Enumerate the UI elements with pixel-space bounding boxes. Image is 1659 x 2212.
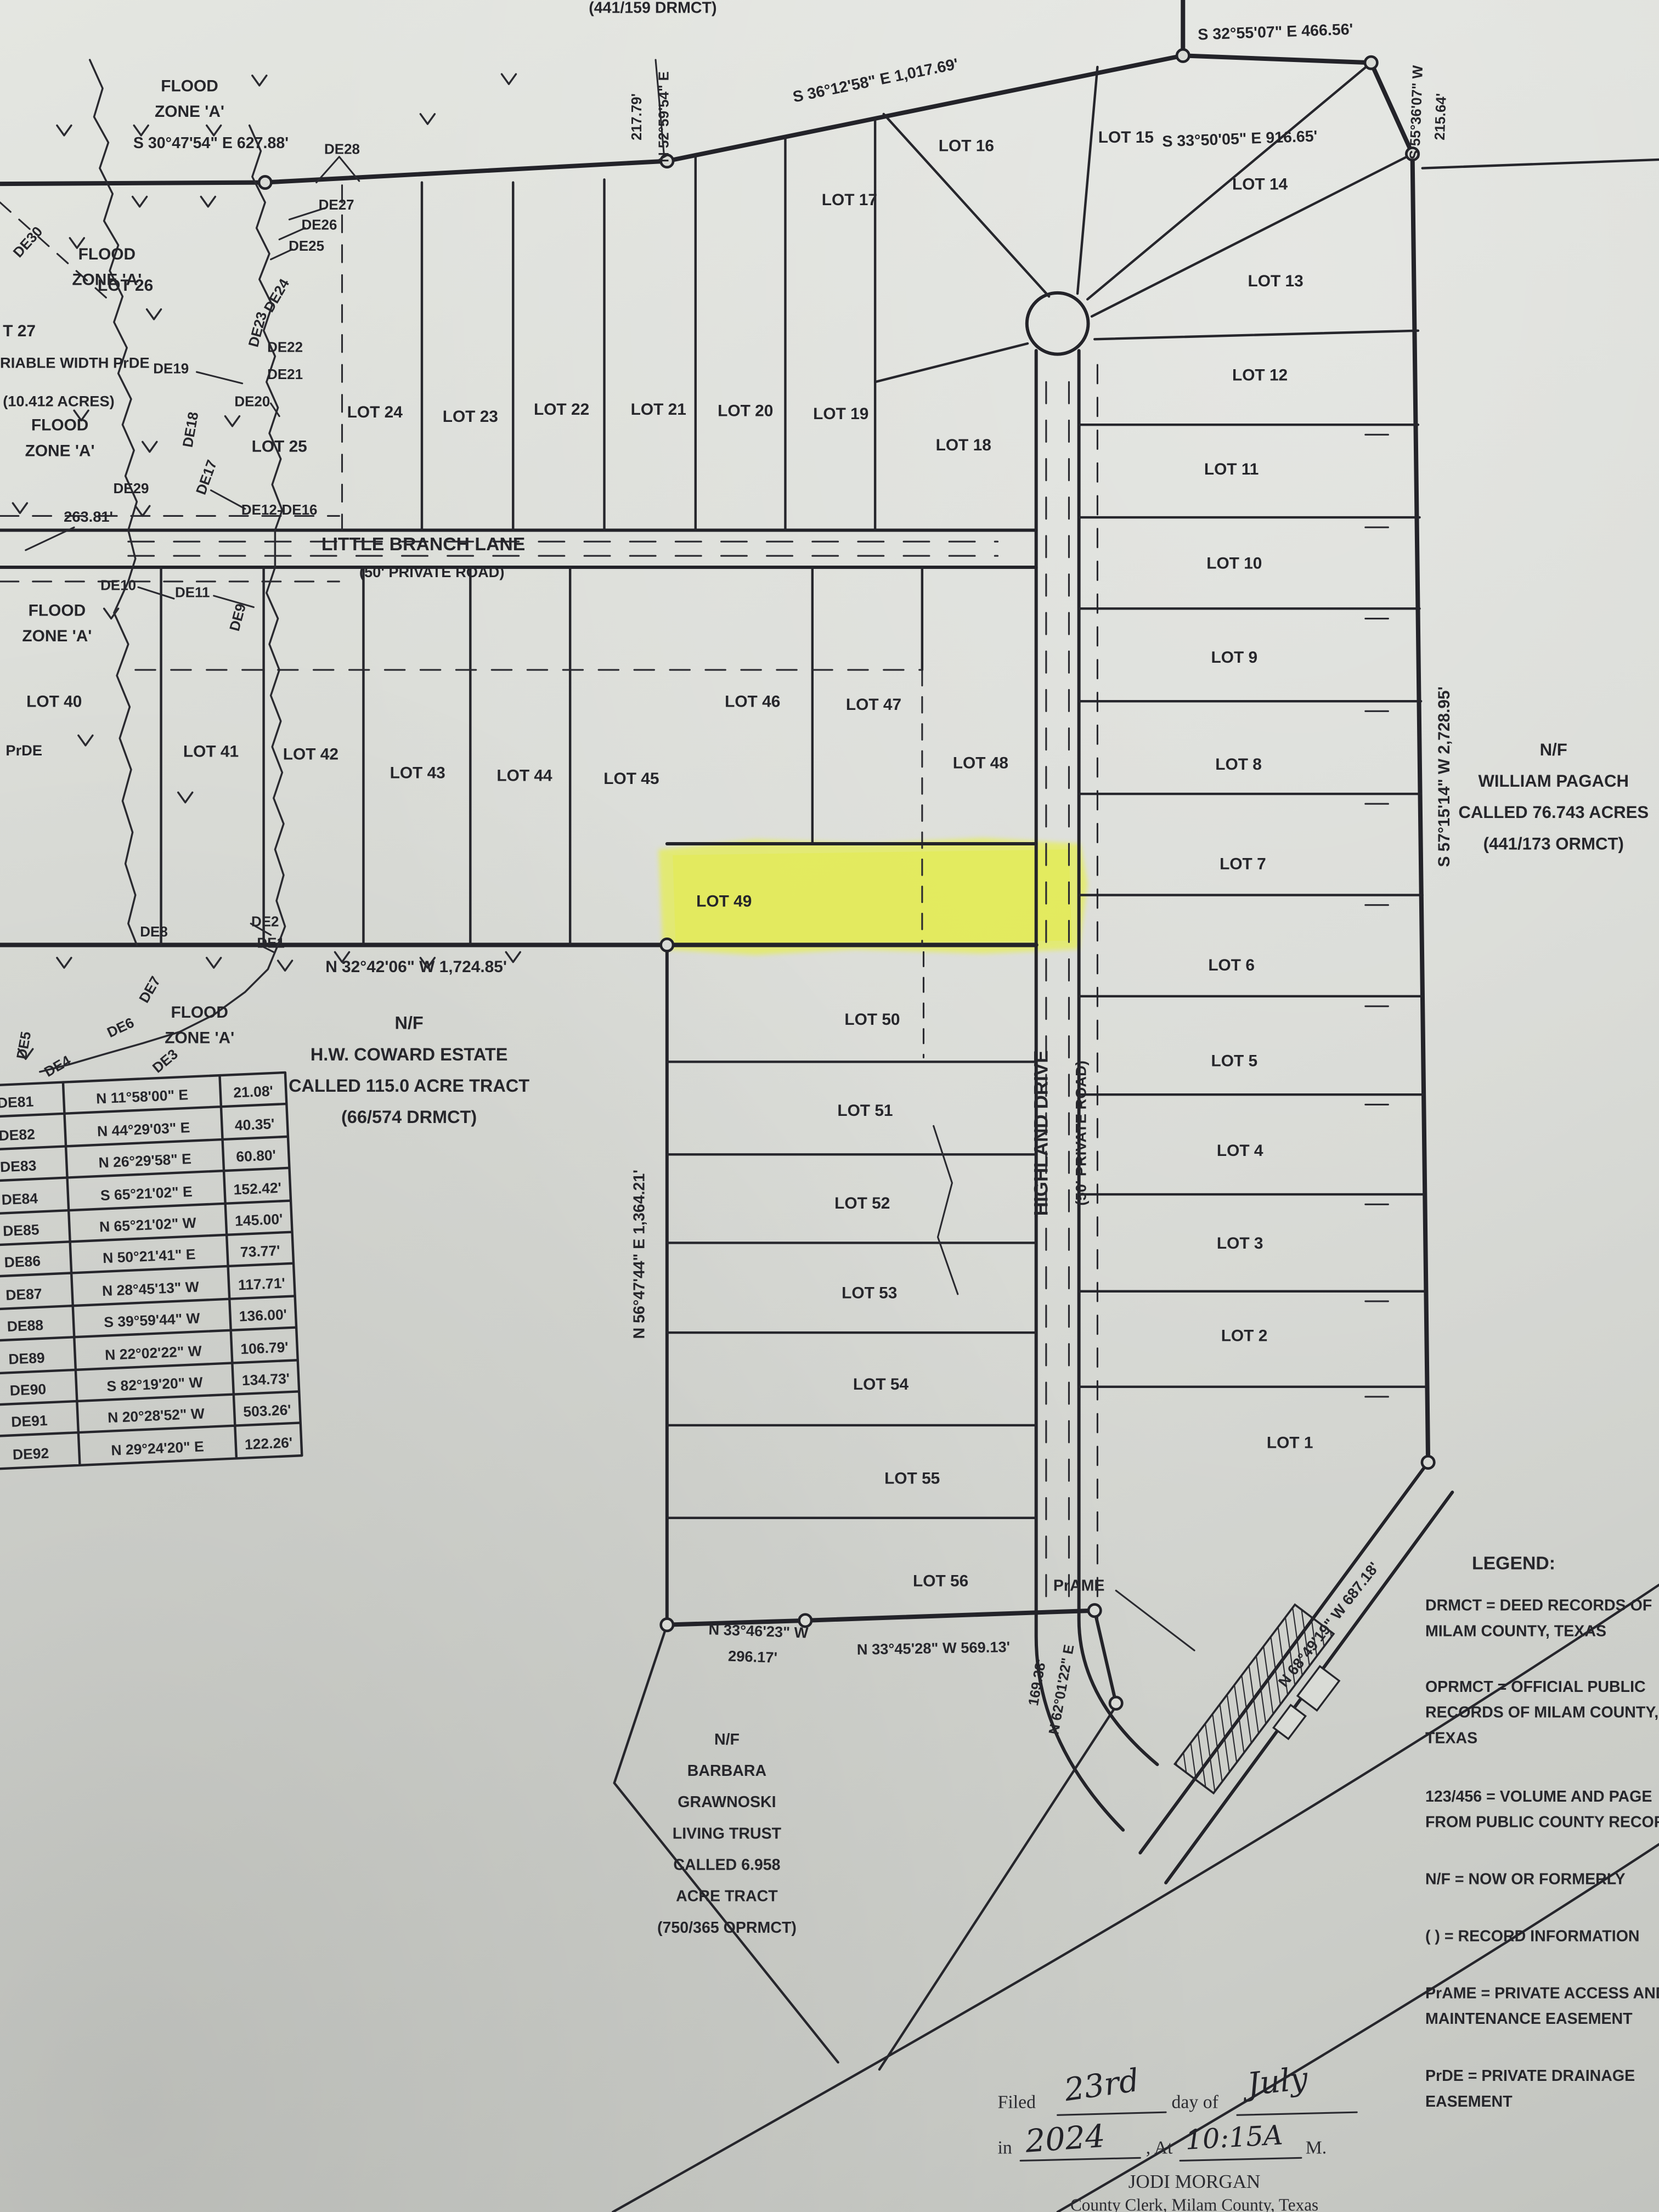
table-cell: DE90	[9, 1381, 46, 1399]
little-branch-lane-label: LITTLE BRANCH LANE	[321, 534, 525, 555]
de-label-22: DE22	[267, 339, 303, 356]
table-cell: 73.77'	[240, 1242, 280, 1260]
filing-block: Filed 23rd day of July in 2024 , At 10:1…	[998, 2061, 1357, 2212]
de-label-8: DE8	[140, 923, 168, 940]
table-cell: N 65°21'02" W	[99, 1215, 196, 1235]
table-cell: 136.00'	[239, 1306, 287, 1325]
grawnoski-name-1: BARBARA	[687, 1762, 766, 1780]
lot-label-1: LOT 1	[1267, 1434, 1313, 1452]
filed-time-handwritten: 10:15A	[1184, 2119, 1284, 2155]
lot-label-23: LOT 23	[443, 408, 498, 426]
monument	[1365, 57, 1377, 69]
lot-label-9: LOT 9	[1211, 648, 1258, 667]
legend-record-info: ( ) = RECORD INFORMATION	[1425, 1927, 1640, 1945]
prame-label: PrAME	[1053, 1577, 1105, 1594]
dist-21564: 215.64'	[1431, 93, 1449, 140]
day-of-word: day of	[1172, 2092, 1219, 2112]
lot-label-21: LOT 21	[631, 400, 686, 419]
highland-drive-label: HIGHLAND DRIVE	[1030, 1050, 1052, 1216]
de-label-10: DE10	[100, 577, 136, 594]
grawnoski-east	[879, 1706, 1116, 2069]
bearing-n324206: N 32°42'06" W 1,724.85'	[325, 958, 507, 976]
monument	[661, 939, 673, 951]
lot-label-12: LOT 12	[1232, 366, 1288, 385]
lot-label-47: LOT 47	[846, 696, 901, 714]
lot-label-46: LOT 46	[725, 693, 780, 711]
bearing-s571514: S 57°15'14" W 2,728.95'	[1435, 686, 1453, 867]
lot-label-48: LOT 48	[953, 754, 1008, 772]
lot-label-20: LOT 20	[718, 402, 773, 420]
table-cell: 122.26'	[244, 1434, 293, 1453]
lot-label-27-partial: T 27	[3, 322, 36, 340]
coward-name: H.W. COWARD ESTATE	[311, 1045, 508, 1064]
lot-label-19: LOT 19	[813, 405, 868, 423]
lot-label-4: LOT 4	[1217, 1142, 1263, 1160]
pagach-north-line	[1423, 160, 1659, 168]
little-branch-lane-sub: (50' PRIVATE ROAD)	[359, 563, 505, 580]
table-cell: DE81	[0, 1093, 34, 1111]
table-cell: N 22°02'22" W	[105, 1342, 202, 1363]
de-label-29: DE29	[114, 480, 149, 496]
legend-drmct-1: DRMCT = DEED RECORDS OF	[1425, 1597, 1652, 1615]
lot-label-56: LOT 56	[913, 1572, 968, 1590]
table-cell: DE85	[3, 1221, 39, 1239]
de-label-25: DE25	[289, 238, 324, 254]
table-cell: S 65°21'02" E	[100, 1183, 193, 1204]
de-label-12-16: DE12-DE16	[241, 501, 318, 518]
bearing-s553607: S 55°36'07" W	[1406, 65, 1426, 160]
legend-prde-2: EASEMENT	[1425, 2093, 1513, 2111]
variable-width-prde-label: RIABLE WIDTH PrDE	[0, 354, 150, 371]
bearing-s325507: S 32°55'07" E 466.56'	[1198, 21, 1353, 44]
table-cell: 145.00'	[234, 1211, 283, 1229]
bearing-s304754: S 30°47'54" E 627.88'	[133, 134, 289, 152]
clerk-title: County Clerk, Milam County, Texas	[1070, 2195, 1318, 2212]
legend-drmct-2: MILAM COUNTY, TEXAS	[1425, 1622, 1606, 1640]
monument	[259, 176, 271, 188]
lot-label-44: LOT 44	[496, 767, 552, 785]
plat-drawing: DE81N 11°58'00" E21.08' DE82N 44°29'03" …	[0, 0, 1659, 2212]
lot-label-49: LOT 49	[696, 892, 752, 910]
dist-21779: 217.79'	[628, 93, 645, 140]
table-cell: DE87	[5, 1285, 42, 1304]
monument	[1177, 49, 1189, 61]
de-label-24: DE24	[261, 275, 293, 315]
cul-de-sac	[1027, 293, 1088, 354]
bearing-n564744: N 56°47'44" E 1,364.21'	[630, 1170, 648, 1339]
de-label-18: DE18	[179, 410, 202, 448]
grawnoski-name-2: GRAWNOSKI	[678, 1793, 776, 1811]
table-cell: DE91	[11, 1412, 48, 1430]
lot-label-17: LOT 17	[822, 191, 877, 209]
lot-label-54: LOT 54	[853, 1375, 909, 1393]
table-text: DE81N 11°58'00" E21.08' DE82N 44°29'03" …	[0, 1082, 293, 1463]
flood-label: FLOOD	[29, 601, 86, 619]
table-cell: 106.79'	[240, 1339, 289, 1357]
de-label-6: DE6	[104, 1014, 136, 1041]
table-cell: N 11°58'00" E	[96, 1086, 189, 1107]
de-label-19: DE19	[153, 360, 189, 377]
plat-photo-page: DE81N 11°58'00" E21.08' DE82N 44°29'03" …	[0, 0, 1659, 2212]
de-label-5: DE5	[13, 1030, 34, 1060]
bearing-s361258: S 36°12'58" E 1,017.69'	[791, 55, 960, 106]
flood-zone-label: ZONE 'A'	[22, 627, 92, 645]
table-cell: 21.08'	[233, 1083, 274, 1101]
lot-label-24: LOT 24	[347, 403, 403, 421]
de-label-20: DE20	[234, 393, 270, 409]
flood-zone-label: ZONE 'A'	[155, 103, 224, 121]
prde-label: PrDE	[5, 742, 42, 759]
flood-zone-label: ZONE 'A'	[165, 1029, 234, 1047]
legend-prame-2: MAINTENANCE EASEMENT	[1425, 2010, 1633, 2028]
legend-title: LEGEND:	[1472, 1553, 1555, 1573]
lot-18-north	[875, 343, 1028, 382]
flood-zone-label: ZONE 'A'	[72, 271, 142, 289]
de-label-2: DE2	[251, 913, 279, 930]
monument	[1110, 1697, 1122, 1709]
lot-label-45: LOT 45	[603, 770, 659, 788]
structure-2	[1273, 1705, 1305, 1739]
legend: LEGEND: DRMCT = DEED RECORDS OF MILAM CO…	[1425, 1553, 1659, 2110]
bearing-n334528: N 33°45'28" W 569.13'	[857, 1638, 1011, 1658]
coward-nf: N/F	[394, 1013, 423, 1033]
bearing-n334623: N 33°46'23" W	[708, 1621, 809, 1641]
prde-acres-label: (10.412 ACRES)	[3, 392, 115, 409]
flood-label: FLOOD	[31, 416, 89, 435]
lot-lines	[136, 63, 1425, 1517]
highland-drive-sub: (50' PRIVATE ROAD)	[1073, 1060, 1090, 1206]
table-cell: N 26°29'58" E	[98, 1150, 191, 1171]
legend-prde-1: PrDE = PRIVATE DRAINAGE	[1425, 2067, 1635, 2085]
de-label-7: DE7	[136, 973, 163, 1006]
table-cell: DE89	[8, 1350, 45, 1368]
segment-169	[1094, 1611, 1116, 1703]
lot-label-14: LOT 14	[1232, 176, 1288, 194]
pagach-record: (441/173 ORMCT)	[1483, 834, 1624, 853]
coward-acres: CALLED 115.0 ACRE TRACT	[289, 1076, 529, 1096]
pagach-name: WILLIAM PAGACH	[1478, 771, 1629, 791]
grawnoski-record: (750/365 OPRMCT)	[657, 1919, 797, 1937]
lot-label-15: LOT 15	[1098, 128, 1154, 146]
lot-label-10: LOT 10	[1206, 555, 1262, 573]
lot-label-25: LOT 25	[252, 438, 307, 456]
legend-oprmct-1: OPRMCT = OFFICIAL PUBLIC	[1425, 1678, 1646, 1696]
de-label-27: DE27	[319, 196, 354, 213]
fan-15-14	[1087, 63, 1371, 299]
table-cell: N 28°45'13" W	[102, 1278, 200, 1299]
at-word: , At	[1146, 2137, 1173, 2158]
flood-label: FLOOD	[78, 245, 136, 263]
table-cell: DE83	[0, 1157, 37, 1175]
de-label-26: DE26	[301, 216, 337, 233]
dist-29617: 296.17'	[728, 1647, 778, 1666]
lot-label-55: LOT 55	[884, 1469, 940, 1487]
lot-label-40: LOT 40	[26, 693, 82, 711]
table-cell: DE82	[0, 1126, 35, 1144]
de-label-21: DE21	[267, 366, 303, 382]
fan-13-12	[1094, 331, 1418, 340]
table-cell: 117.71'	[238, 1275, 285, 1294]
meridiem-word: M.	[1306, 2137, 1327, 2158]
lot-label-18: LOT 18	[936, 436, 991, 454]
de-label-1: DE1	[257, 935, 285, 951]
filed-month-handwritten: July	[1240, 2061, 1310, 2103]
row-end-ticks	[1365, 435, 1389, 1397]
legend-oprmct-3: TEXAS	[1425, 1729, 1477, 1747]
table-cell: DE84	[1, 1190, 38, 1208]
clerk-name: JODI MORGAN	[1128, 2171, 1261, 2192]
pagach-nf: N/F	[1540, 740, 1567, 759]
monument	[661, 1618, 673, 1630]
lot-label-11: LOT 11	[1204, 460, 1259, 478]
flood-zone-label: ZONE 'A'	[25, 442, 95, 460]
table-cell: N 50°21'41" E	[103, 1246, 196, 1266]
legend-volume-2: FROM PUBLIC COUNTY RECORDS	[1425, 1814, 1659, 1831]
filed-word: Filed	[998, 2092, 1036, 2112]
lot-label-51: LOT 51	[837, 1102, 893, 1120]
lot-label-16: LOT 16	[939, 137, 994, 155]
coward-record: (66/574 DRMCT)	[341, 1107, 477, 1127]
lot-label-52: LOT 52	[834, 1194, 890, 1212]
table-cell: DE92	[12, 1445, 49, 1463]
de-label-23: DE23	[245, 310, 270, 349]
table-cell: N 44°29'03" E	[97, 1119, 190, 1139]
de-table: DE81N 11°58'00" E21.08' DE82N 44°29'03" …	[0, 1073, 302, 1469]
in-word: in	[998, 2137, 1012, 2158]
lot-label-7: LOT 7	[1220, 855, 1266, 873]
bearing-s335005: S 33°50'05" E 916.65'	[1162, 127, 1318, 150]
table-cell: 134.73'	[241, 1370, 290, 1389]
de-label-30: DE30	[10, 223, 46, 261]
de-label-28: DE28	[324, 141, 360, 157]
flood-label: FLOOD	[161, 77, 218, 95]
dist-26381: 263.81'	[64, 508, 113, 525]
grawnoski-tract: ACRE TRACT	[676, 1888, 778, 1905]
table-cell: 60.80'	[236, 1147, 276, 1165]
filed-year-handwritten: 2024	[1024, 2118, 1107, 2160]
grawnoski-nf: N/F	[714, 1731, 740, 1748]
creek-west	[90, 60, 137, 945]
lot-labels: LOT 1 LOT 2 LOT 3 LOT 4 LOT 5 LOT 6 LOT …	[3, 128, 1313, 1590]
grawnoski-trust: LIVING TRUST	[673, 1825, 782, 1842]
lot-label-3: LOT 3	[1217, 1234, 1263, 1252]
table-cell: S 39°59'44" W	[104, 1310, 200, 1331]
de-label-11: DE11	[175, 584, 210, 601]
swale-51-52	[934, 1126, 958, 1294]
cols-19-24	[422, 119, 875, 531]
lot-label-42: LOT 42	[283, 746, 338, 764]
flood-label: FLOOD	[171, 1003, 228, 1022]
table-cell: S 82°19'20" W	[106, 1374, 203, 1395]
monument	[1422, 1456, 1434, 1468]
record-ref-partial: (441/159 DRMCT)	[589, 0, 716, 16]
lot-label-41: LOT 41	[183, 743, 239, 761]
monument	[1088, 1604, 1101, 1616]
de-label-3: DE3	[149, 1046, 181, 1076]
table-cell: 503.26'	[243, 1402, 292, 1420]
table-cell: N 20°28'52" W	[108, 1405, 205, 1426]
prame-hatch	[1175, 1605, 1359, 1813]
highland-right-edge	[1079, 351, 1158, 1764]
table-cell: 152.42'	[233, 1180, 282, 1198]
legend-volume-1: 123/456 = VOLUME AND PAGE	[1425, 1788, 1652, 1805]
table-cell: DE86	[4, 1252, 41, 1271]
legend-prame-1: PrAME = PRIVATE ACCESS AND	[1425, 1984, 1659, 2002]
lot-label-22: LOT 22	[534, 400, 589, 419]
lot-label-2: LOT 2	[1221, 1327, 1268, 1345]
grawnoski-called: CALLED 6.958	[673, 1856, 780, 1874]
lot-label-5: LOT 5	[1211, 1052, 1258, 1070]
legend-nf: N/F = NOW OR FORMERLY	[1425, 1870, 1626, 1888]
lot-label-13: LOT 13	[1248, 272, 1304, 290]
de-label-9: DE9	[226, 602, 249, 633]
grawnoski-west	[614, 1625, 838, 2063]
lot-label-8: LOT 8	[1215, 755, 1262, 774]
legend-oprmct-2: RECORDS OF MILAM COUNTY,	[1425, 1704, 1658, 1722]
pagach-acres: CALLED 76.743 ACRES	[1458, 803, 1649, 822]
table-cell: 40.35'	[234, 1115, 275, 1133]
lot-label-6: LOT 6	[1208, 956, 1255, 974]
de-label-17: DE17	[193, 458, 220, 496]
table-cell: N 29°24'20" E	[111, 1438, 204, 1458]
filed-day-handwritten: 23rd	[1062, 2062, 1141, 2109]
bearing-n620122: N 62°01'22" E	[1045, 1643, 1077, 1736]
de-label-4: DE4	[41, 1052, 74, 1080]
lot-label-53: LOT 53	[842, 1284, 897, 1302]
fan-16-15	[1077, 67, 1097, 294]
lot-label-43: LOT 43	[390, 764, 445, 782]
bearing-n525954: N 52°59'54" E	[655, 71, 672, 162]
table-cell: DE88	[7, 1317, 43, 1335]
lot-label-50: LOT 50	[844, 1011, 900, 1029]
